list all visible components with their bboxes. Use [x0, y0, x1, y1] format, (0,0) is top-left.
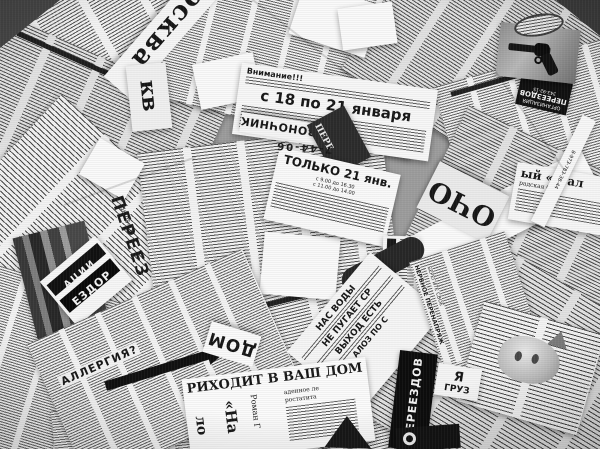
gruz-ad-scrap: Я ГРУЗ	[434, 363, 482, 401]
pig-nostril	[514, 350, 523, 362]
revolver-grip	[540, 52, 560, 77]
blank-paper-scrap	[337, 1, 397, 50]
na-rotated-text: «На	[220, 399, 242, 434]
newspaper-collage-photo: осква кв Внимание!!! с 18 по 21 января П…	[0, 0, 600, 449]
blank-paper-scrap	[259, 232, 340, 300]
o-logo-banner	[395, 424, 461, 449]
revolver-trigger-guard	[534, 56, 543, 65]
roman-rotated-text: Роман Г	[249, 394, 262, 429]
o-ring-logo	[403, 432, 417, 446]
ya-text: Я	[453, 369, 465, 385]
kv-headline-text: кв	[133, 63, 166, 129]
lo-rotated-text: ло	[192, 415, 210, 436]
kv-headline-scrap: кв	[126, 62, 173, 132]
pig-nostril	[530, 353, 539, 365]
